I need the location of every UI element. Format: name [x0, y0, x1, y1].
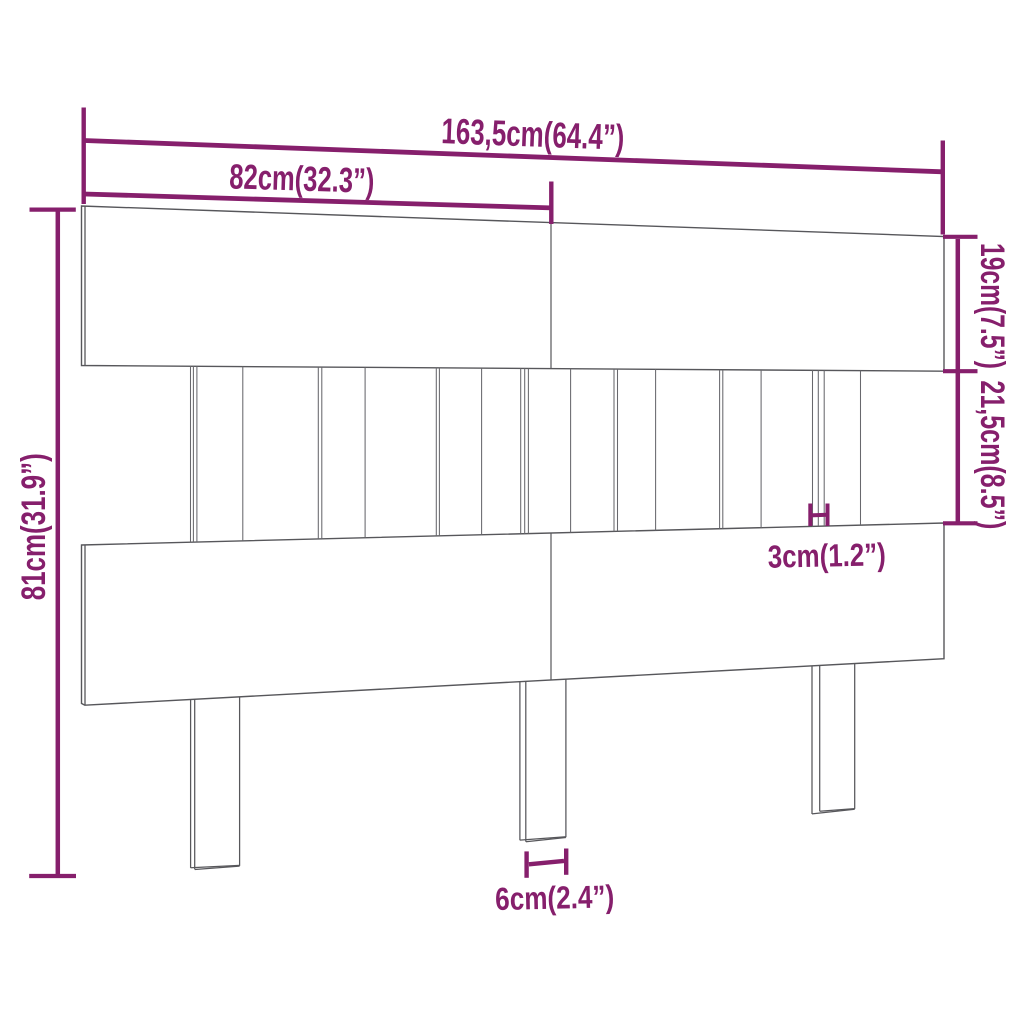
svg-text:163,5cm(64.4”): 163,5cm(64.4”)	[441, 110, 625, 158]
svg-text:19cm(7.5”): 19cm(7.5”)	[973, 243, 1011, 369]
svg-text:82cm(32.3”): 82cm(32.3”)	[229, 157, 375, 201]
svg-text:81cm(31.9”): 81cm(31.9”)	[15, 453, 53, 600]
svg-text:21,5cm(8.5”): 21,5cm(8.5”)	[973, 380, 1011, 529]
svg-text:3cm(1.2”): 3cm(1.2”)	[767, 536, 886, 574]
svg-text:6cm(2.4”): 6cm(2.4”)	[495, 878, 615, 917]
